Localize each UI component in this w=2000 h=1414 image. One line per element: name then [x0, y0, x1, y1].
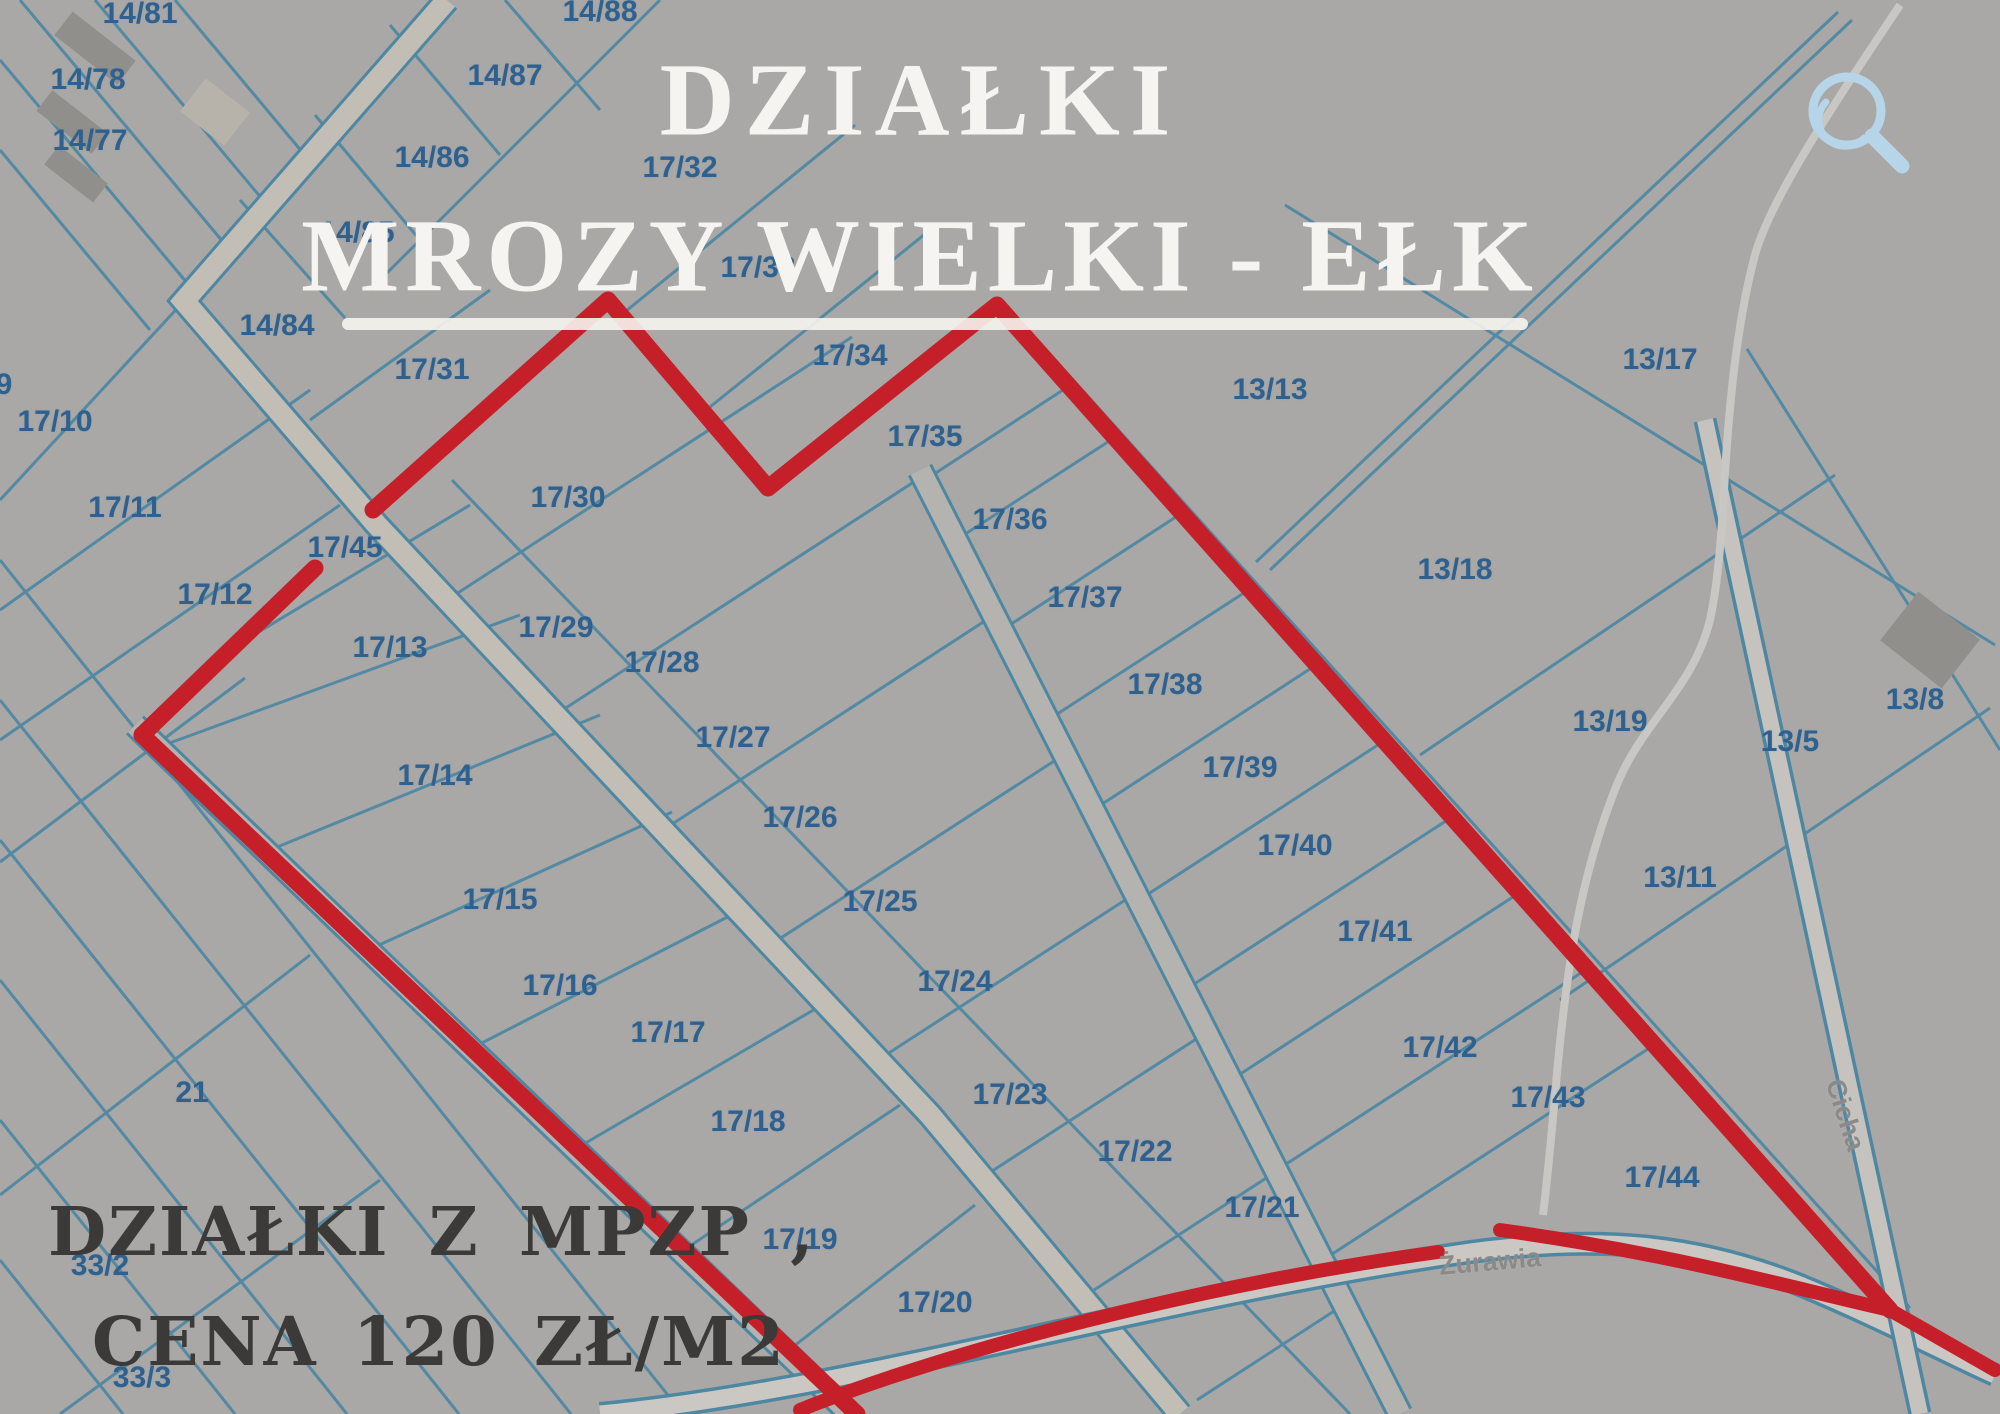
parcel-label-17-13: 17/13 — [352, 631, 427, 665]
parcel-label-17-42: 17/42 — [1402, 1031, 1477, 1065]
parcel-label-13-5: 13/5 — [1761, 725, 1819, 759]
parcel-label-17-35: 17/35 — [887, 420, 962, 454]
parcel-label-17-29: 17/29 — [518, 611, 593, 645]
street-label-cicha: Cicha — [1819, 1075, 1871, 1155]
parcel-label-14-85: 14/85 — [319, 216, 394, 250]
parcel-label-17-17: 17/17 — [630, 1016, 705, 1050]
parcel-label-13-8: 13/8 — [1886, 683, 1944, 717]
promo-line2: CENA 120 ZŁ/M2 — [92, 1302, 786, 1381]
map-canvas: 914/8114/7814/7714/8814/8714/8614/8514/8… — [0, 0, 2000, 1414]
parcel-label-13-19: 13/19 — [1572, 705, 1647, 739]
parcel-label-17-39: 17/39 — [1202, 751, 1277, 785]
parcel-label-14-81: 14/81 — [102, 0, 177, 31]
parcel-label-17-30: 17/30 — [530, 481, 605, 515]
parcel-label-17-32: 17/32 — [642, 151, 717, 185]
parcel-label-17-31: 17/31 — [394, 353, 469, 387]
street-label-żurawia: Żurawia — [1438, 1242, 1542, 1282]
parcel-label-17-22: 17/22 — [1097, 1135, 1172, 1169]
parcel-label-13-11: 13/11 — [1643, 861, 1716, 895]
parcel-label-17-25: 17/25 — [842, 885, 917, 919]
parcel-label-17-21: 17/21 — [1224, 1191, 1299, 1225]
parcel-label-17-14: 17/14 — [397, 759, 472, 793]
parcel-label-17-27: 17/27 — [695, 721, 770, 755]
parcel-label-13-17: 13/17 — [1622, 343, 1697, 377]
parcel-label-17-40: 17/40 — [1257, 829, 1332, 863]
parcel-label-14-84: 14/84 — [239, 309, 314, 343]
parcel-label-17-36: 17/36 — [972, 503, 1047, 537]
parcel-label-17-43: 17/43 — [1510, 1081, 1585, 1115]
parcel-label-17-15: 17/15 — [462, 883, 537, 917]
parcel-label-17-34: 17/34 — [812, 339, 887, 373]
parcel-label-14-87: 14/87 — [467, 59, 542, 93]
parcel-label-17-41: 17/41 — [1337, 915, 1412, 949]
parcel-label-17-45: 17/45 — [307, 531, 382, 565]
parcel-label-17-24: 17/24 — [917, 965, 992, 999]
parcel-label-17-12: 17/12 — [177, 578, 252, 612]
parcel-label-17-18: 17/18 — [710, 1105, 785, 1139]
parcel-label-14-78: 14/78 — [50, 63, 125, 97]
parcel-label-17-28: 17/28 — [624, 646, 699, 680]
parcel-label-17-44: 17/44 — [1624, 1161, 1699, 1195]
parcel-label-17-16: 17/16 — [522, 969, 597, 1003]
parcel-label-17-23: 17/23 — [972, 1078, 1047, 1112]
parcel-label-9: 9 — [0, 368, 12, 402]
parcel-label-17-20: 17/20 — [897, 1286, 972, 1320]
parcel-label-17-37: 17/37 — [1047, 581, 1122, 615]
parcel-label-17-33: 17/33 — [720, 251, 795, 285]
parcel-label-17-11: 17/11 — [88, 491, 161, 525]
parcel-label-14-88: 14/88 — [562, 0, 637, 29]
promo-line1: DZIAŁKI Z MPZP , — [48, 1192, 816, 1271]
parcel-label-13-13: 13/13 — [1232, 373, 1307, 407]
parcel-label-21: 21 — [175, 1076, 208, 1110]
parcel-label-17-38: 17/38 — [1127, 668, 1202, 702]
parcel-label-14-86: 14/86 — [394, 141, 469, 175]
parcel-label-13-18: 13/18 — [1417, 553, 1492, 587]
parcel-label-14-77: 14/77 — [52, 124, 127, 158]
parcel-label-17-10: 17/10 — [17, 405, 92, 439]
parcel-label-17-26: 17/26 — [762, 801, 837, 835]
